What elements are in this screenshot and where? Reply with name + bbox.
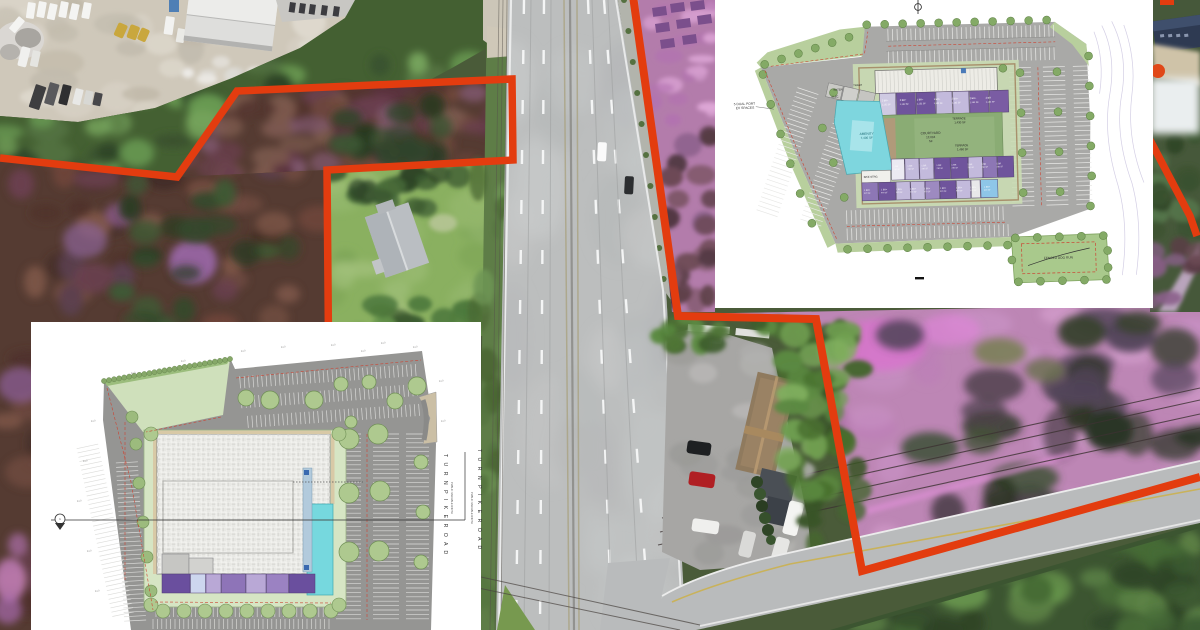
- svg-text:730 SF: 730 SF: [921, 168, 928, 170]
- svg-text:ELEC.: ELEC.: [832, 94, 840, 98]
- svg-text:7,400 SF: 7,400 SF: [861, 136, 873, 140]
- svg-text:1 BR+: 1 BR+: [917, 98, 924, 101]
- svg-text:1 BR+: 1 BR+: [881, 189, 888, 191]
- svg-text:970 SF: 970 SF: [940, 191, 947, 193]
- svg-text:1 BR+: 1 BR+: [940, 188, 947, 190]
- svg-text:1 BR+: 1 BR+: [956, 187, 963, 189]
- svg-text:1 BR+: 1 BR+: [934, 98, 941, 101]
- svg-text:1 BR: 1 BR: [996, 163, 1001, 165]
- svg-text:970 SF: 970 SF: [924, 191, 931, 193]
- svg-text:1 BR+: 1 BR+: [924, 188, 931, 190]
- svg-text:730 SF: 730 SF: [996, 166, 1003, 168]
- svg-text:PUBLIC VARIABLE WIDTH: PUBLIC VARIABLE WIDTH: [450, 482, 454, 514]
- svg-text:1,152 SF: 1,152 SF: [900, 104, 910, 106]
- svg-text:1 BR+: 1 BR+: [864, 190, 871, 192]
- svg-text:1,152 SF: 1,152 SF: [970, 102, 980, 104]
- svg-text:1,430 SF: 1,430 SF: [954, 120, 966, 124]
- svg-text:1,152 SF: 1,152 SF: [952, 102, 962, 104]
- svg-text:970 SF: 970 SF: [864, 193, 871, 195]
- svg-text:WATER: WATER: [833, 87, 842, 91]
- svg-text:1 BR: 1 BR: [921, 165, 926, 167]
- svg-text:1 BR+: 1 BR+: [910, 188, 917, 190]
- svg-text:1,152 SF: 1,152 SF: [934, 103, 944, 105]
- svg-text:730 SF: 730 SF: [981, 167, 988, 169]
- svg-text:730 SF: 730 SF: [936, 168, 943, 170]
- svg-text:T U R N P I K E R O A D: T U R N P I K E R O A D: [476, 449, 482, 551]
- svg-text:1,152 SF: 1,152 SF: [882, 104, 892, 106]
- svg-text:1 BR: 1 BR: [936, 165, 941, 167]
- svg-text:970 SF: 970 SF: [984, 190, 991, 192]
- svg-text:970 SF: 970 SF: [970, 190, 977, 192]
- svg-text:730 SF: 730 SF: [967, 167, 974, 169]
- svg-text:PUBLIC VARIABLE WIDTH: PUBLIC VARIABLE WIDTH: [470, 492, 474, 524]
- svg-text:1 BR+: 1 BR+: [970, 187, 977, 189]
- svg-text:1 BR: 1 BR: [907, 166, 912, 168]
- svg-text:1 BR+: 1 BR+: [896, 189, 903, 191]
- svg-text:FENCED DOG RUN: FENCED DOG RUN: [1044, 255, 1074, 260]
- svg-text:730 SF: 730 SF: [907, 169, 914, 171]
- svg-text:2 BR+: 2 BR+: [882, 99, 889, 102]
- svg-text:BIKE STRG.: BIKE STRG.: [864, 174, 879, 178]
- svg-text:2 BR+: 2 BR+: [970, 97, 977, 100]
- svg-text:1 BR: 1 BR: [981, 164, 986, 166]
- svg-text:1 BR: 1 BR: [951, 164, 956, 166]
- svg-text:1 BR+: 1 BR+: [984, 187, 991, 189]
- svg-text:2 BR: 2 BR: [986, 97, 992, 100]
- svg-text:T U R N P I K E R O A D: T U R N P I K E R O A D: [442, 454, 448, 556]
- svg-text:970 SF: 970 SF: [910, 191, 917, 193]
- svg-text:970 SF: 970 SF: [896, 192, 903, 194]
- svg-text:2 BR+: 2 BR+: [900, 99, 907, 102]
- svg-text:970 SF: 970 SF: [881, 192, 888, 194]
- svg-text:SF: SF: [929, 139, 933, 143]
- svg-text:730 SF: 730 SF: [893, 169, 900, 171]
- svg-text:970 SF: 970 SF: [956, 190, 963, 192]
- svg-text:1 BR: 1 BR: [967, 164, 972, 166]
- svg-text:EV SPACES: EV SPACES: [736, 106, 755, 111]
- svg-text:1 BR: 1 BR: [893, 166, 898, 168]
- svg-text:1,460 SF: 1,460 SF: [957, 147, 969, 151]
- svg-text:TRASH: TRASH: [853, 83, 862, 87]
- svg-text:1,152 SF: 1,152 SF: [986, 101, 996, 103]
- svg-text:730 SF: 730 SF: [951, 167, 958, 169]
- svg-text:2 BR+: 2 BR+: [952, 97, 959, 100]
- svg-text:1,152 SF: 1,152 SF: [917, 103, 927, 105]
